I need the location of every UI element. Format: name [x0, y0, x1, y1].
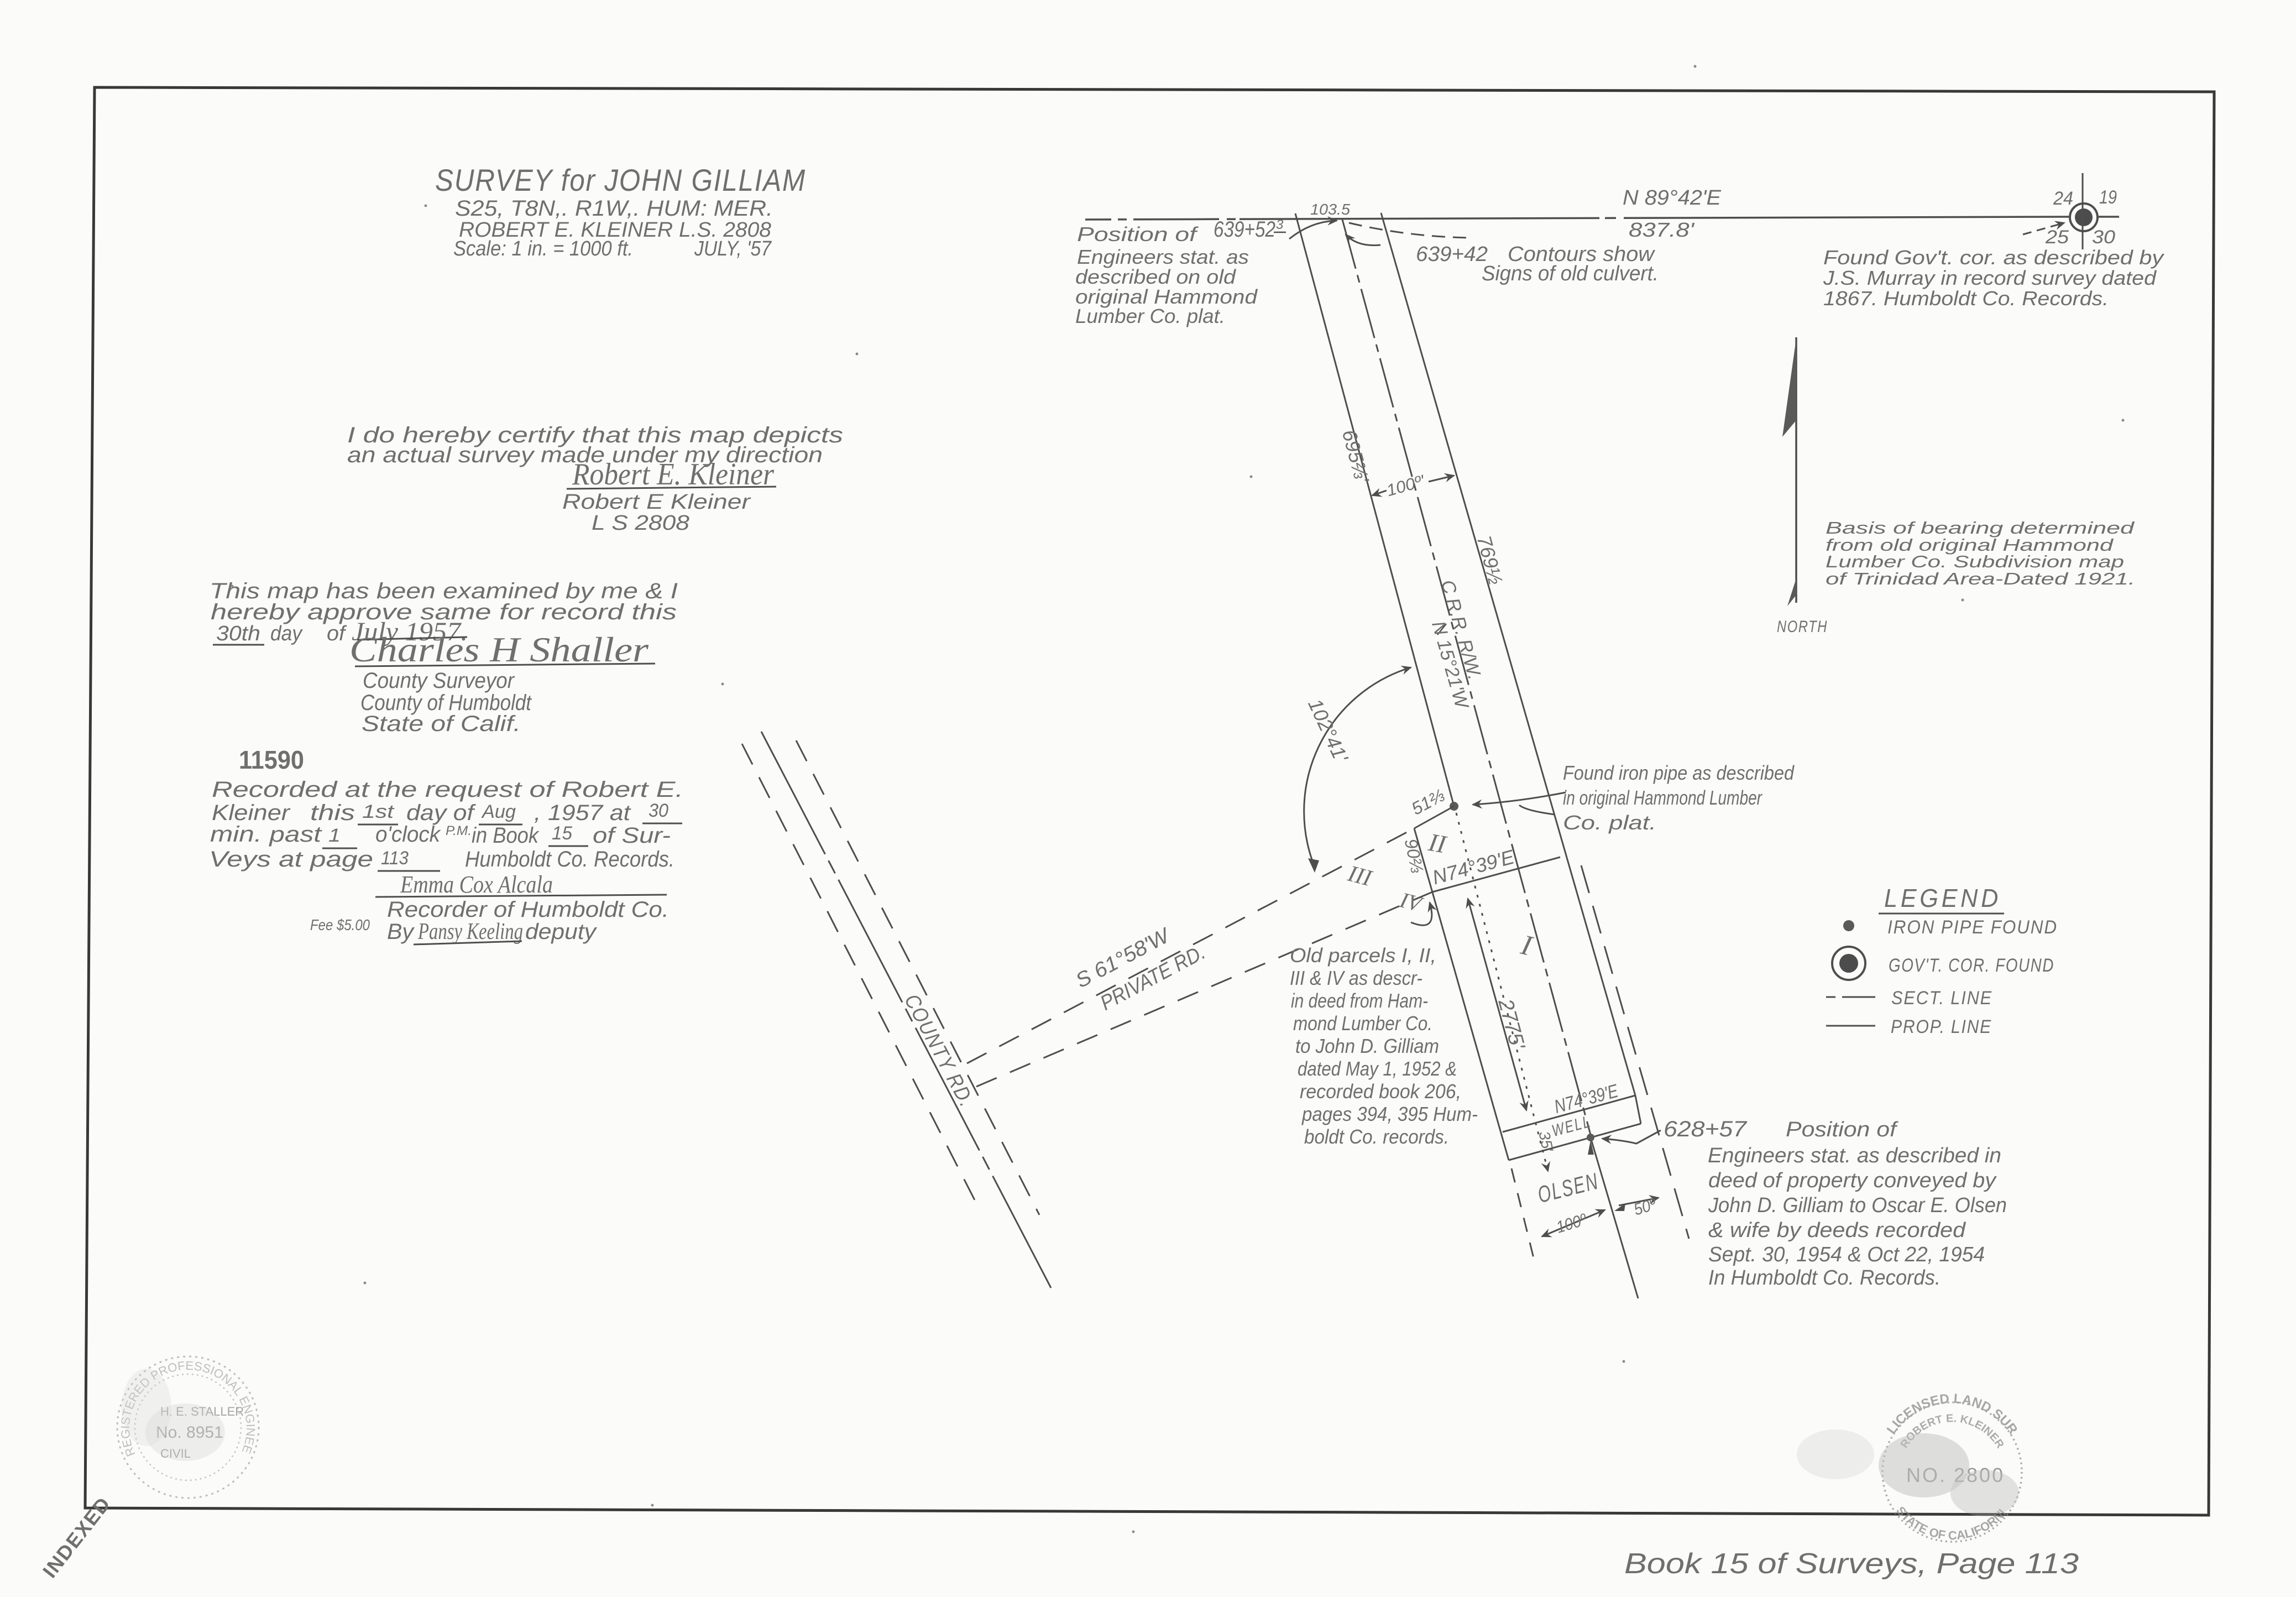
svg-text:639+52: 639+52 [1214, 217, 1275, 242]
svg-text:in deed from Ham-: in deed from Ham- [1291, 989, 1428, 1012]
svg-text:described on old: described on old [1075, 265, 1236, 288]
svg-text:30: 30 [648, 800, 668, 821]
svg-text:of Sur-: of Sur- [593, 823, 671, 848]
svg-text:Old parcels I, II,: Old parcels I, II, [1290, 944, 1436, 967]
svg-text:103.5: 103.5 [1310, 201, 1350, 218]
svg-text:P.M.: P.M. [446, 823, 472, 838]
svg-text:Engineers stat. as: Engineers stat. as [1077, 246, 1249, 268]
svg-text:in original Hammond Lumber: in original Hammond Lumber [1563, 786, 1763, 809]
svg-text:Signs of old culvert.: Signs of old culvert. [1482, 262, 1659, 285]
svg-text:Found iron pipe as described: Found iron pipe as described [1563, 761, 1795, 784]
svg-text:Aug: Aug [481, 801, 516, 822]
svg-text:IRON PIPE FOUND: IRON PIPE FOUND [1887, 917, 2058, 938]
svg-text:NORTH: NORTH [1777, 618, 1828, 636]
svg-text:Kleiner: Kleiner [212, 801, 291, 825]
svg-text:day: day [270, 622, 303, 645]
svg-text:J.S. Murray in record survey d: J.S. Murray in record survey dated [1823, 267, 2157, 289]
svg-text:By: By [387, 920, 415, 944]
svg-text:Position of: Position of [1077, 223, 1199, 246]
svg-text:30: 30 [2092, 227, 2115, 248]
svg-text:113: 113 [381, 848, 409, 869]
svg-text:1st: 1st [362, 801, 395, 822]
svg-text:1: 1 [328, 825, 341, 846]
svg-text:Engineers stat. as described i: Engineers stat. as described in [1708, 1144, 2001, 1167]
svg-text:Book 15 of Surveys, Page 113: Book 15 of Surveys, Page 113 [1624, 1548, 2079, 1580]
svg-text:Scale: 1 in. = 1000 ft.: Scale: 1 in. = 1000 ft. [453, 237, 633, 260]
svg-text:PROP. LINE: PROP. LINE [1891, 1016, 1992, 1037]
svg-text:L S 2808: L S 2808 [592, 512, 689, 535]
svg-text:o'clock: o'clock [375, 822, 441, 847]
svg-text:Position of: Position of [1786, 1118, 1898, 1141]
svg-text:day of: day of [406, 801, 476, 825]
svg-text:boldt Co. records.: boldt Co. records. [1304, 1125, 1449, 1148]
svg-text:19: 19 [2099, 187, 2117, 208]
svg-text:SECT. LINE: SECT. LINE [1891, 988, 1992, 1009]
svg-text:25: 25 [2045, 227, 2069, 248]
svg-text:pages 394, 395 Hum-: pages 394, 395 Hum- [1301, 1103, 1478, 1125]
svg-text:dated May 1, 1952 &: dated May 1, 1952 & [1298, 1057, 1457, 1080]
svg-text:Recorder of Humboldt Co.: Recorder of Humboldt Co. [387, 897, 669, 922]
svg-text:deputy: deputy [525, 920, 598, 944]
svg-text:639+42: 639+42 [1416, 243, 1488, 266]
svg-text:SURVEY for JOHN GILLIAM: SURVEY for JOHN GILLIAM [435, 163, 806, 197]
svg-text:Humboldt Co. Records.: Humboldt Co. Records. [465, 847, 674, 871]
svg-text:min. past: min. past [210, 822, 322, 847]
svg-text:GOV'T. COR. FOUND: GOV'T. COR. FOUND [1889, 955, 2054, 976]
svg-text:County Surveyor: County Surveyor [363, 669, 515, 693]
svg-text:1867. Humboldt Co. Records.: 1867. Humboldt Co. Records. [1823, 287, 2109, 310]
svg-text:15: 15 [552, 823, 572, 844]
svg-text:Basis of bearing determined: Basis of bearing determined [1826, 518, 2136, 537]
svg-text:Recorded at the request of Rob: Recorded at the request of Robert E. [212, 777, 683, 802]
svg-text:Emma Cox Alcala: Emma Cox Alcala [400, 871, 553, 898]
svg-text:Veys at page: Veys at page [209, 847, 373, 871]
svg-text:Pansy Keeling: Pansy Keeling [417, 919, 523, 944]
svg-text:837.8': 837.8' [1629, 218, 1694, 241]
svg-text:628+57: 628+57 [1664, 1117, 1748, 1141]
svg-text:Lumber Co. Subdivision map: Lumber Co. Subdivision map [1826, 552, 2124, 571]
svg-text:this: this [310, 801, 355, 825]
svg-text:mond Lumber Co.: mond Lumber Co. [1293, 1012, 1432, 1035]
svg-text:of: of [327, 622, 347, 645]
svg-text:, 1957 at: , 1957 at [534, 801, 631, 825]
svg-text:Found Gov't. cor. as described: Found Gov't. cor. as described by [1823, 246, 2164, 269]
svg-text:Fee $5.00: Fee $5.00 [310, 916, 370, 933]
svg-text:III & IV as descr-: III & IV as descr- [1290, 967, 1422, 989]
svg-text:Sept. 30, 1954 & Oct 22, 1954: Sept. 30, 1954 & Oct 22, 1954 [1708, 1243, 1985, 1266]
svg-text:In Humboldt Co. Records.: In Humboldt Co. Records. [1708, 1266, 1941, 1290]
svg-text:to John D. Gilliam: to John D. Gilliam [1295, 1035, 1439, 1057]
svg-text:24: 24 [2053, 188, 2073, 209]
svg-text:S25, T8N,. R1W,. HUM: MER.: S25, T8N,. R1W,. HUM: MER. [455, 196, 773, 221]
svg-text:recorded book 206,: recorded book 206, [1300, 1080, 1461, 1103]
svg-text:11590: 11590 [239, 745, 304, 774]
svg-text:State of Calif.: State of Calif. [362, 712, 521, 736]
svg-text:30th: 30th [216, 622, 260, 645]
svg-text:LEGEND: LEGEND [1884, 884, 2001, 912]
svg-text:deed of property conveyed by: deed of property conveyed by [1708, 1169, 1997, 1192]
svg-text:of Trinidad Area-Dated 1921.: of Trinidad Area-Dated 1921. [1826, 569, 2135, 588]
svg-text:Robert E Kleiner: Robert E Kleiner [562, 490, 751, 514]
svg-text:3: 3 [1276, 217, 1284, 232]
svg-text:Co. plat.: Co. plat. [1563, 811, 1656, 834]
svg-text:& wife by deeds recorded: & wife by deeds recorded [1708, 1219, 1966, 1242]
svg-text:JULY, '57: JULY, '57 [694, 237, 772, 260]
svg-text:John D. Gilliam to Oscar E. Ol: John D. Gilliam to Oscar E. Olsen [1708, 1194, 2007, 1217]
svg-text:N 89°42'E: N 89°42'E [1623, 186, 1722, 210]
svg-text:Lumber Co. plat.: Lumber Co. plat. [1075, 305, 1225, 327]
svg-text:in Book: in Book [472, 823, 540, 848]
